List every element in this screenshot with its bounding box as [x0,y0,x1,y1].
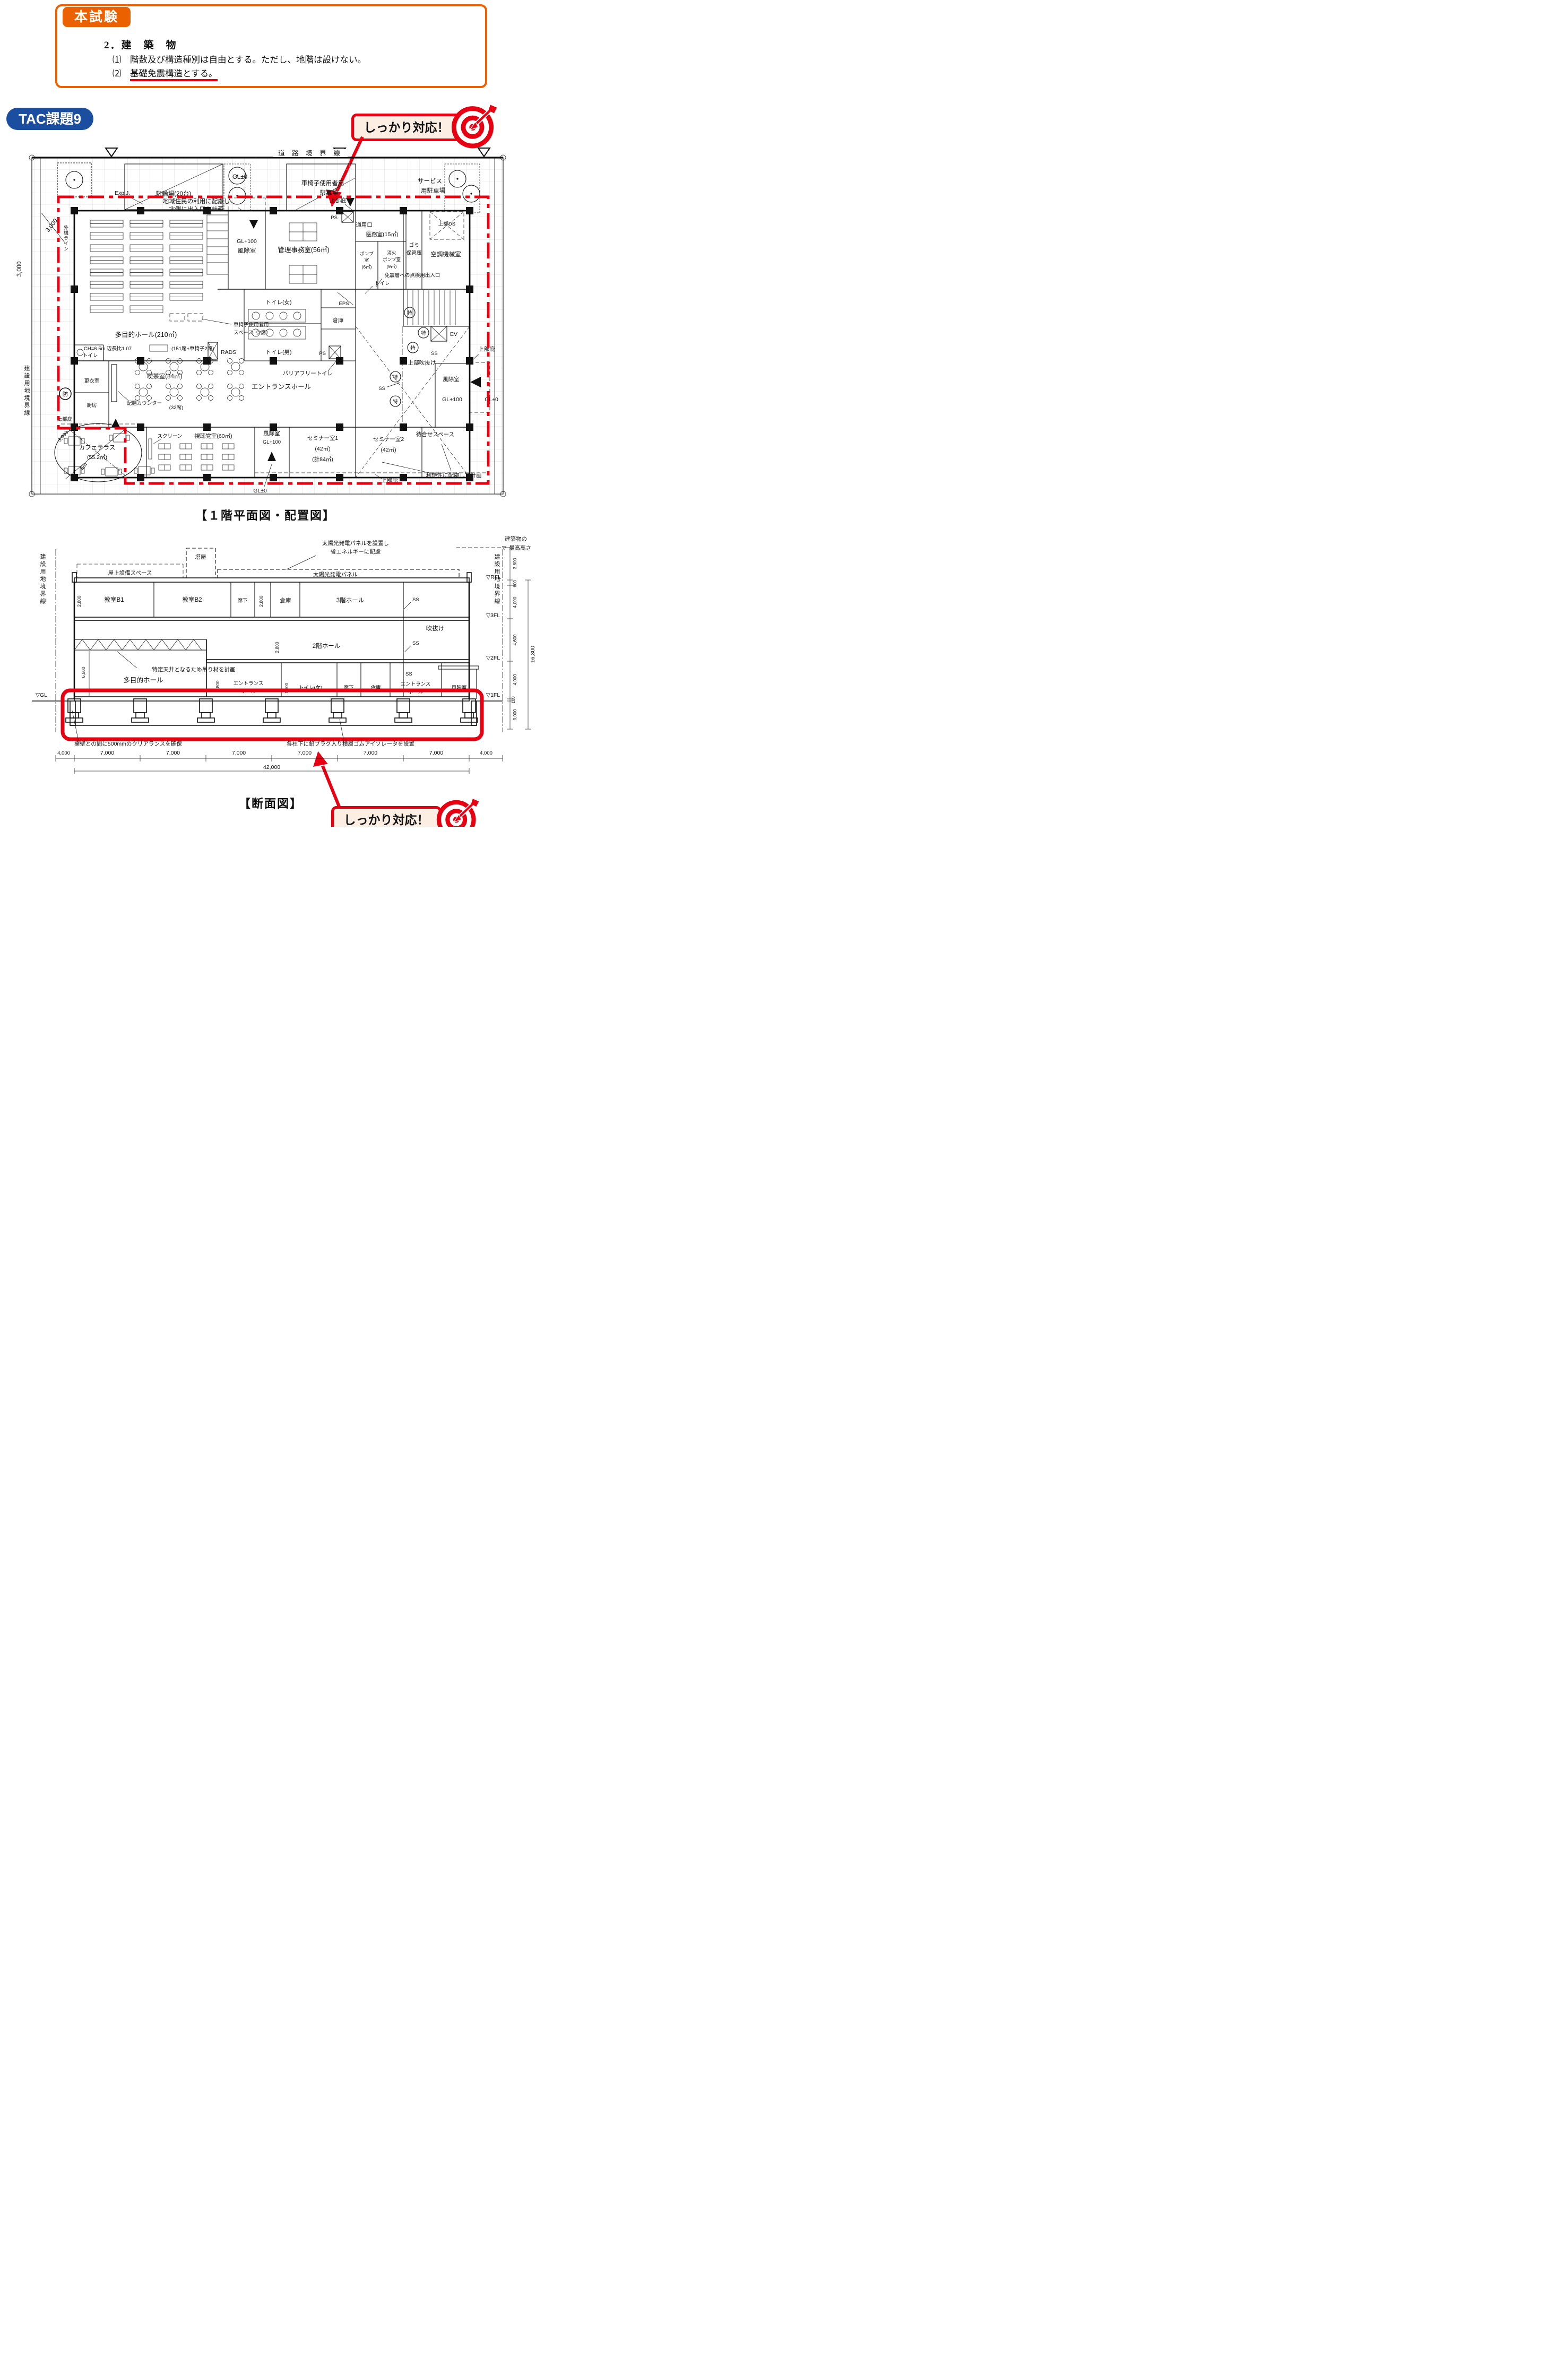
hall-3f-label: 3階ホール [336,596,364,604]
svg-text:(42㎡): (42㎡) [381,447,396,453]
classroom-b2-label: 教室B2 [182,596,202,603]
dim-4000-right: 4,000 [480,750,492,756]
toku-mark-1: 特 [407,310,412,316]
eps-label: EPS [339,301,349,307]
svg-text:7,000: 7,000 [166,750,180,756]
gl-level-label: ▽GL [36,692,47,698]
ceiling-note: 特定天井となるため吊り材を計画 [152,666,235,673]
target-dart-icon-top [451,103,498,150]
svg-text:(計84㎡): (計84㎡) [312,456,333,463]
ss-label-2: SS [378,386,385,392]
north-access-note: 地域住民の利用に配慮し [163,197,230,205]
clearance-note: 擁壁との間に500mmのクリアランスを確保 [74,740,182,747]
corridor-3f-label: 廊下 [237,598,247,604]
dim-3000-left: 3,000 [16,262,23,277]
dim-42000: 42,000 [263,764,280,771]
svg-text:ポンプ室: ポンプ室 [383,257,401,262]
svg-text:用駐車場: 用駐車場 [421,187,445,194]
ss-section-2: SS [412,641,419,646]
service-entrance-label: 通用口 [356,222,373,228]
waiting-space-label: 待合せスペース [416,431,454,438]
hall-seat-count: (151席+車椅子2席) [171,345,214,352]
dim-100: 100 [511,696,516,704]
dim-600: 600 [513,580,517,587]
ss-section-1: SS [412,597,419,603]
entrance-hall-section-left: エントランス [234,681,264,687]
max-height-marker: ▽ [502,545,507,551]
svg-text:室: 室 [365,257,369,263]
section-drawing: 塔屋 屋上設備スペース 太陽光発電パネル 太陽光発電パネルを設置し 省エネルギー… [11,533,541,783]
dim-4000-rfl3f: 4,000 [512,596,517,608]
gl100-east: GL+100 [442,396,462,403]
dim-2800-3f-left: 2,800 [76,595,82,607]
admin-office-label: 管理事務室(56㎡) [278,246,329,254]
road-boundary-label: 道 路 境 界 線 [278,149,342,157]
toku-mark-5: 特 [393,399,398,405]
exam-badge: 本試験 [63,7,131,27]
base-isolation [32,699,503,725]
windbreak-east-label: 風除室 [443,376,460,383]
storage-3f-label: 倉庫 [280,597,291,604]
svg-text:7,000: 7,000 [429,750,443,756]
wheelchair-parking-label: 車椅子使用者用 [301,179,344,187]
ps-label-center: PS [319,351,326,357]
ss-section-3: SS [405,671,412,677]
isolator-note: 各柱下に鉛プラグ入り積層ゴムアイソレータを設置 [287,740,414,747]
svg-text:省エネルギーに配慮: 省エネルギーに配慮 [331,548,381,555]
section-caption: 【断面図】 [74,794,467,811]
dim-2800-3f-mid: 2,800 [258,595,264,607]
document-page: 本試験 2．建 築 物 ⑴ 階数及び構造種別は自由とする。ただし、地階は設けない… [0,0,543,827]
solar-note: 太陽光発電パネルを設置し [322,540,389,547]
svg-text:(42㎡): (42㎡) [315,446,330,452]
screen-label: スクリーン [157,434,182,439]
section-title: 2．建 築 物 [104,37,177,51]
ev-label: EV [450,331,457,337]
site-boundary-label-section-left: 建設用地境界線 [38,553,47,630]
bou-mark: 防 [63,391,68,397]
roof-space-label: 屋上設備スペース [108,569,152,576]
svg-text:(6㎡): (6㎡) [362,264,372,270]
seismic-access-note: 免震層への点検用出入口 [385,272,440,279]
hall-toilet-label: トイレ [83,353,98,359]
hall-spec: CH=6.5m 辺長比1.07 [84,345,132,352]
wheelchair-space-note: 車椅子使用者用 [234,322,269,328]
hvac-room-label: 空調機械室 [430,250,461,258]
storage-label-plan: 倉庫 [333,317,344,324]
toilet-women-label: トイレ(女) [266,299,292,306]
svg-text:(9㎡): (9㎡) [387,264,397,269]
svg-text:最高高さ: 最高高さ [509,544,531,551]
dim-16300: 16,300 [530,646,536,663]
entrance-hall-label: エントランスホール [252,383,311,391]
barrier-free-toilet-note: バリアフリートイレ [283,370,333,377]
windbreak-north-label: 風除室 [238,247,256,254]
void-label: 吹抜け [426,625,445,632]
fire-pump-room-label: 消火 [387,250,396,255]
classroom-b1-label: 教室B1 [104,596,124,603]
cafe-terrace-label: カフェテラス [79,444,116,451]
svg-text:7,000: 7,000 [298,750,312,756]
tower-dashed [186,548,215,578]
garbage-storage-label: ゴミ [409,242,419,248]
tac-assignment-badge: TAC課題9 [6,108,93,130]
svg-text:(55.2㎡): (55.2㎡) [87,454,107,461]
dim-6500: 6,500 [81,667,86,678]
counter-seats-label: (32席) [169,404,183,411]
medical-room-label: 医務室(15㎡) [366,231,399,238]
hall-label: 多目的ホール(210㎡) [115,331,177,339]
dim-4000-2f1f: 4,000 [512,674,517,686]
expansion-joint-label: Exp.J. [115,190,130,196]
gl100-north: GL+100 [237,238,257,245]
ss-label-1: SS [431,351,438,357]
gl0-east: GL±0 [485,396,498,403]
gl100-south: GL+100 [263,439,281,445]
floor-plan-drawing: 道 路 境 界 線 駐輪場(20台) GL±0 車椅子使用者用 駐車場 サービス… [11,146,509,506]
item2-underlined-text: 基礎免震構造とする。 [130,68,218,81]
dim-4600: 4,600 [512,634,517,646]
isolation-highlight-red-box [63,690,482,739]
svg-text:7,000: 7,000 [364,750,377,756]
level-1fl: ▽1FL [486,692,500,698]
seminar1-label: セミナー室1 [307,435,338,442]
upper-ds-label: 上部DS [438,221,455,227]
item2-number: ⑵ [113,68,130,79]
plan-caption: 【１階平面図・配置図】 [74,506,456,523]
kitchen-label: 厨房 [87,402,97,409]
svg-text:7,000: 7,000 [232,750,246,756]
ps-label-north: PS [331,215,338,221]
svg-text:7,000: 7,000 [100,750,114,756]
hall-2f-label: 2階ホール [313,642,340,650]
dim-2800-2f: 2,800 [274,642,280,653]
canopy-label-east: 上部庇 [478,345,495,352]
dim-3600: 3,600 [512,558,517,569]
condition-item-1: ⑴ 階数及び構造種別は自由とする。ただし、地階は設けない。 [113,53,366,65]
upper-void-label: 上部吹抜け [408,359,436,366]
av-room-label: 視聴覚室(60㎡) [194,432,232,439]
site-boundary-label-section-right: 建設用地境界線 [492,553,501,630]
toilet-men-label: トイレ(男) [266,349,292,356]
site-boundary-label-plan: 建設用地境界線 [22,365,31,442]
level-2fl: ▽2FL [486,655,500,661]
service-parking-label: サービス [418,178,442,185]
toku-mark-4: 特 [393,374,398,380]
gl0-south: GL±0 [253,488,267,494]
svg-text:保管庫: 保管庫 [407,250,422,256]
toilet-note-ne: トイレ [375,281,390,287]
rads-label: RADS [221,349,236,356]
seminar2-label: セミナー室2 [373,436,404,443]
pump-room-label: ポンプ [360,251,374,256]
toku-mark-3: 特 [410,345,416,351]
entrance-hall-section-right: エントランス [401,681,431,687]
serving-counter-label: 配膳カウンター [127,400,162,406]
cafe-room-label: 喫茶室(84㎡) [147,373,183,380]
dim-4000-left: 4,000 [57,750,70,756]
gaikou-line-label: 外構ライン [63,225,70,257]
changing-room-label: 更衣室 [84,378,100,384]
svg-text:駐車場: 駐車場 [320,189,339,196]
dim-3000-section: 3,000 [512,709,517,721]
hall-section-label: 多目的ホール [123,676,163,684]
condition-item-2: ⑵ 基礎免震構造とする。 [113,66,218,79]
tower-label: 塔屋 [195,553,206,560]
max-height-label: 建築物の [505,535,527,542]
solar-panel-label: 太陽光発電パネル [313,571,358,578]
toku-mark-2: 特 [421,330,426,336]
